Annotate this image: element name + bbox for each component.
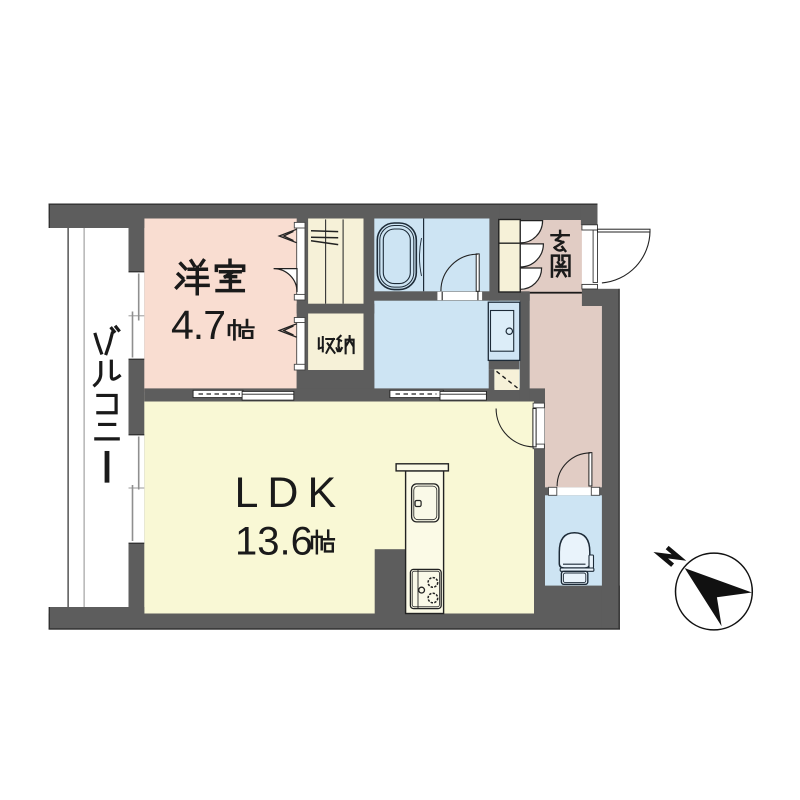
svg-text:4.7: 4.7 — [171, 302, 225, 348]
svg-text:LDK: LDK — [235, 469, 346, 517]
svg-text:13.6: 13.6 — [235, 520, 313, 564]
